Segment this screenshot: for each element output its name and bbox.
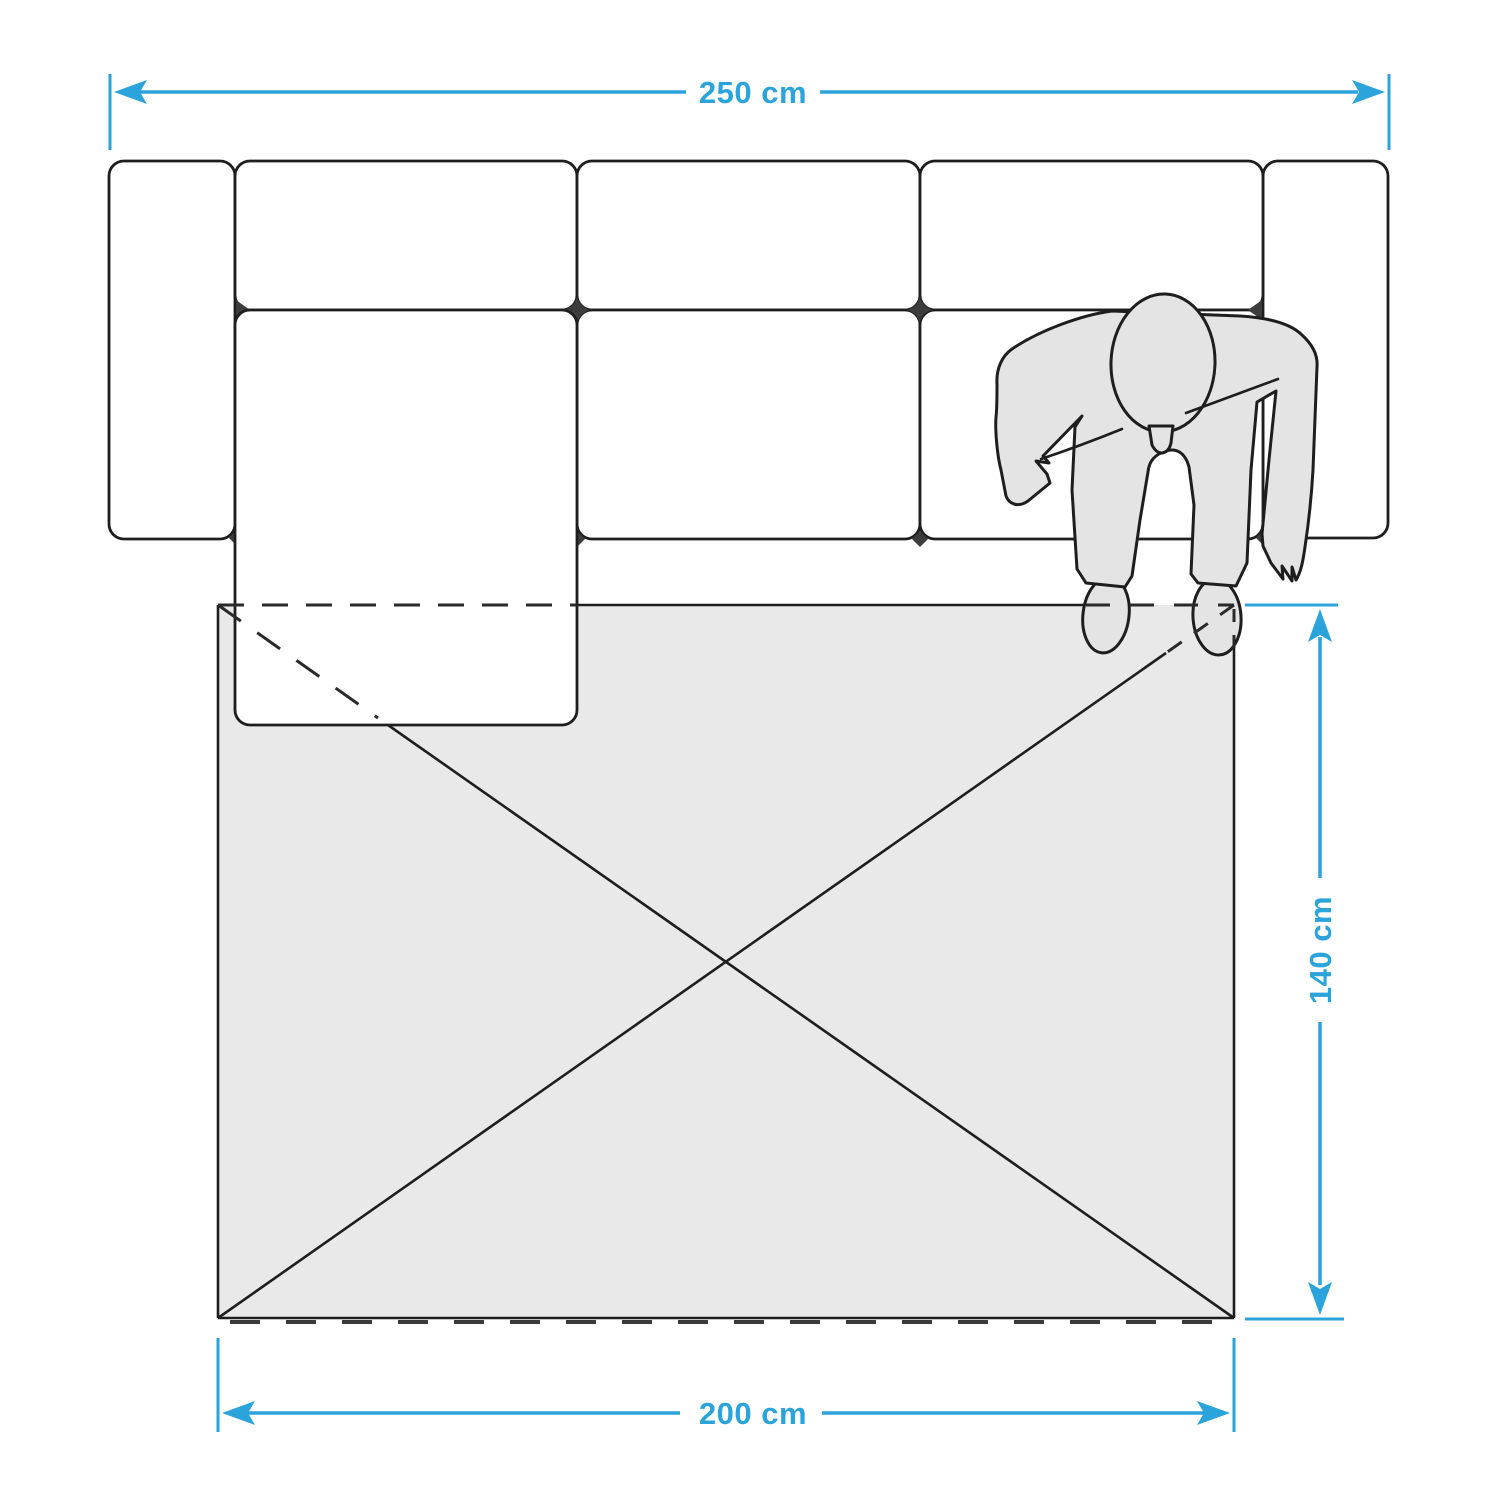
dimension-rug-depth: 140 cm (1245, 605, 1344, 1319)
size-guide-diagram: 250 cm 140 cm 200 cm (0, 0, 1500, 1501)
arrow-down-icon (1308, 1282, 1332, 1315)
diagram-svg: 250 cm 140 cm 200 cm (0, 0, 1500, 1501)
sofa-armrest-left (109, 161, 235, 539)
sofa-seat-cushion-2 (577, 310, 920, 539)
dimension-sofa-width: 250 cm (110, 74, 1389, 150)
dimension-rug-width: 200 cm (218, 1338, 1234, 1432)
sofa-back-cushion-1 (235, 161, 577, 310)
chaise-lounge-icon (235, 310, 577, 725)
sofa-width-label: 250 cm (699, 75, 807, 110)
person-neck-marker (1149, 426, 1173, 453)
rug-width-label: 200 cm (699, 1396, 807, 1431)
rug-depth-label: 140 cm (1303, 896, 1338, 1004)
sofa-back-cushion-3 (920, 161, 1263, 310)
sofa-back-cushion-2 (577, 161, 920, 310)
